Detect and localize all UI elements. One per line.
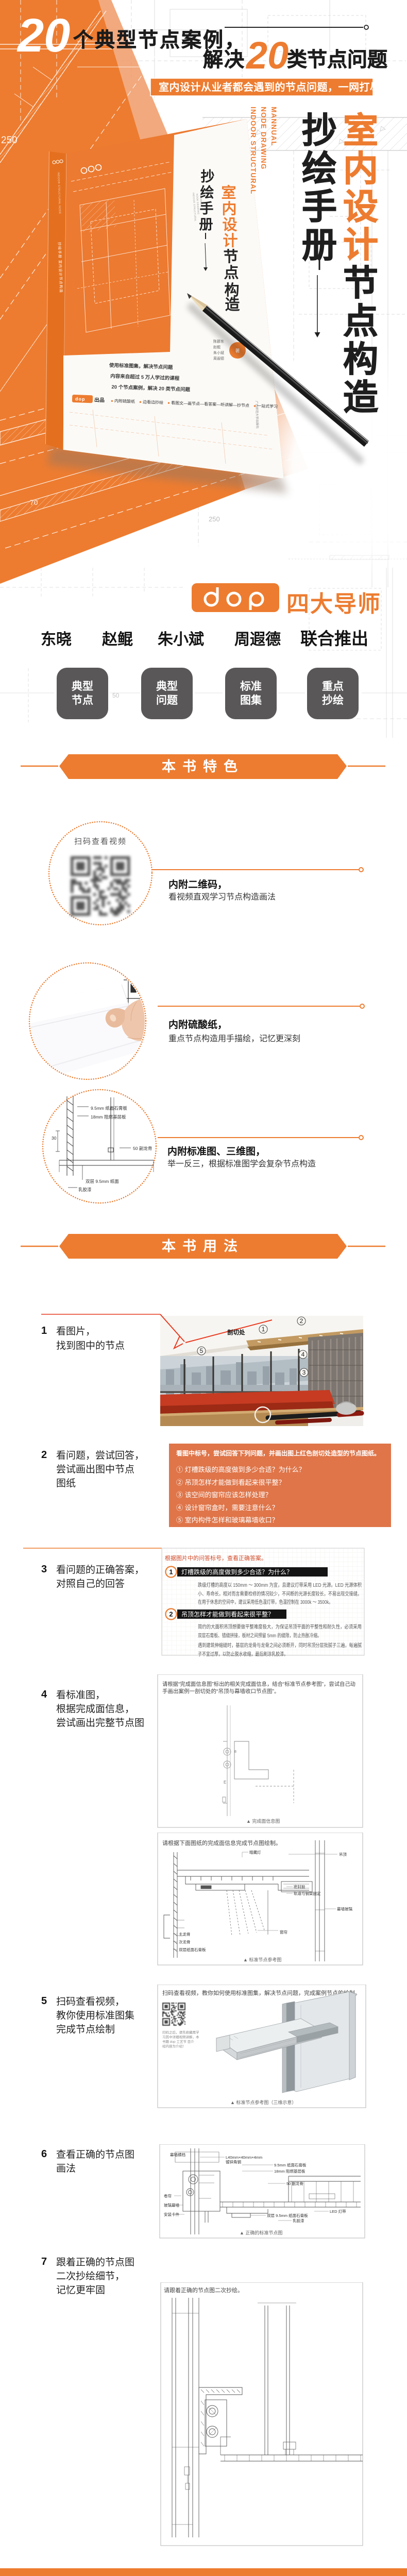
svg-text:计: 计 [223, 232, 238, 249]
svg-text:造: 造 [343, 378, 378, 417]
svg-text:5: 5 [200, 1347, 203, 1354]
svg-text:E: E [224, 1780, 226, 1785]
svg-text:根据图片中的问答标号，查看正确答案。: 根据图片中的问答标号，查看正确答案。 [165, 1554, 267, 1562]
svg-text:暗藏灯: 暗藏灯 [249, 1850, 261, 1855]
svg-text:镀锌角钢: 镀锌角钢 [226, 2159, 241, 2164]
svg-text:造: 造 [225, 296, 240, 313]
svg-text:吊顶: 吊顶 [339, 1852, 347, 1857]
svg-text:▲ 完成面信息图: ▲ 完成面信息图 [246, 1818, 280, 1824]
svg-text:安装卡件: 安装卡件 [164, 2212, 179, 2217]
svg-text:计: 计 [343, 226, 378, 265]
svg-text:次龙骨: 次龙骨 [179, 1939, 191, 1944]
svg-text:请根据下面图纸的完成面信息完成节点图绘制。: 请根据下面图纸的完成面信息完成节点图绘制。 [162, 1839, 281, 1846]
svg-text:设: 设 [222, 216, 237, 233]
svg-text:内: 内 [343, 149, 378, 189]
svg-text:20: 20 [245, 34, 289, 77]
svg-text:遇到建筑伸缩缝时，基层的龙骨与龙骨之间必须断开，同时吊顶分层: 遇到建筑伸缩缝时，基层的龙骨与龙骨之间必须断开，同时吊顶分层批腻子三遍，每遍腻 [198, 1642, 362, 1649]
svg-text:室: 室 [343, 111, 378, 150]
svg-text:剖切处: 剖切处 [227, 1329, 245, 1336]
svg-text:赵鲲: 赵鲲 [213, 345, 221, 349]
svg-text:习其中详细视频讲解，本: 习其中详细视频讲解，本 [162, 2035, 199, 2039]
svg-text:▲ 标准节点参考图（三维示意）: ▲ 标准节点参考图（三维示意） [230, 2099, 296, 2105]
svg-text:手: 手 [302, 188, 337, 227]
svg-text:轨道与钢架固定: 轨道与钢架固定 [294, 1891, 321, 1896]
svg-text:手: 手 [200, 201, 214, 216]
svg-text:简约的大面积吊顶想要做平整难度极大，为保证吊顶平面的平整性和: 简约的大面积吊顶想要做平整难度极大，为保证吊顶平面的平整性和耐久性，必须采用 [198, 1623, 362, 1630]
svg-text:4: 4 [301, 1351, 305, 1358]
svg-text:出品: 出品 [94, 396, 105, 403]
svg-text:1: 1 [169, 1568, 173, 1576]
svg-text:重点节点构造用手描绘，记忆更深刻: 重点节点构造用手描绘，记忆更深刻 [168, 1034, 300, 1043]
svg-text:3: 3 [302, 1369, 306, 1376]
svg-text:跌级灯槽的高度以 150mm ～ 300mm 为宜，且建议灯: 跌级灯槽的高度以 150mm ～ 300mm 为宜，且建议灯带采用 LED 光源… [198, 1582, 362, 1588]
svg-text:内附硫酸纸，: 内附硫酸纸， [168, 1019, 227, 1030]
svg-text:子不宜过厚，以防止脱水收缩，最后刷涂乳胶漆。: 子不宜过厚，以防止脱水收缩，最后刷涂乳胶漆。 [198, 1651, 288, 1657]
svg-text:18mm 阻燃基层板: 18mm 阻燃基层板 [274, 2168, 306, 2174]
svg-text:9.5mm 纸面石膏板: 9.5mm 纸面石膏板 [274, 2162, 307, 2167]
svg-text:朱小斌: 朱小斌 [213, 350, 224, 355]
svg-text:▲ 正确的标准节点图: ▲ 正确的标准节点图 [240, 2230, 282, 2235]
svg-text:抄: 抄 [302, 111, 337, 150]
svg-text:绘: 绘 [200, 184, 214, 200]
svg-text:50: 50 [112, 692, 120, 699]
svg-text:请跟着正确的节点图二次抄绘。: 请跟着正确的节点图二次抄绘。 [164, 2286, 243, 2294]
svg-text:室: 室 [221, 184, 236, 201]
svg-text:个典型节点案例，: 个典型节点案例， [73, 29, 246, 52]
svg-text:看视频直观学习节点构造画法: 看视频直观学习节点构造画法 [168, 892, 276, 902]
svg-text:在用于休息的空间中，建议采用低色温灯带，色温控制在 3000: 在用于休息的空间中，建议采用低色温灯带，色温控制在 3000k ～ 3500k。 [198, 1599, 333, 1605]
svg-text:双层石膏板、错缝拼接，板材之间预留 5mm 的缝隙，防止热胀: 双层石膏板、错缝拼接，板材之间预留 5mm 的缝隙，防止热胀冷缩。 [198, 1632, 321, 1639]
svg-text:50 副龙骨: 50 副龙骨 [133, 1146, 152, 1151]
svg-text:双层 9.5mm 纸面石膏板: 双层 9.5mm 纸面石膏板 [267, 2213, 308, 2218]
svg-text:INDOOR STRUCTURAL: INDOOR STRUCTURAL [249, 107, 257, 194]
svg-text:绘: 绘 [302, 149, 337, 189]
svg-text:30: 30 [52, 1136, 57, 1141]
svg-text:18mm 阻燃基层板: 18mm 阻燃基层板 [91, 1114, 126, 1120]
svg-text:书籍 dop 工艺节 目介: 书籍 dop 工艺节 目介 [162, 2039, 194, 2044]
svg-text:周遐德: 周遐德 [213, 356, 224, 361]
svg-text:70: 70 [30, 498, 38, 506]
svg-text:20: 20 [16, 9, 70, 62]
svg-text:8: 8 [234, 1750, 236, 1754]
svg-text:双层 9.5mm 纸面: 双层 9.5mm 纸面 [86, 1179, 119, 1184]
svg-text:2: 2 [300, 1317, 303, 1325]
svg-text:NODE DRAWING: NODE DRAWING [260, 107, 267, 170]
svg-text:扫码查看视频: 扫码查看视频 [74, 837, 127, 846]
svg-text:请根据“完成面信息图”标出的相关完成面信息，结合“标准节点参: 请根据“完成面信息图”标出的相关完成面信息，结合“标准节点参考图”，尝试自己动 [162, 1681, 355, 1687]
svg-text:窗帘: 窗帘 [280, 1929, 287, 1935]
svg-text:本书用法: 本书用法 [162, 1239, 244, 1254]
svg-text:类节点问题: 类节点问题 [287, 49, 387, 71]
svg-text:设: 设 [343, 188, 378, 227]
svg-text:绍内容为介绍！: 绍内容为介绍！ [162, 2044, 186, 2048]
svg-text:50 副龙骨: 50 副龙骨 [286, 2181, 303, 2186]
svg-text:室内设计从业者都会遇到的节点问题，一网打尽: 室内设计从业者都会遇到的节点问题，一网打尽 [159, 81, 381, 93]
svg-text:灯槽跌级的高度做到多少合适？为什么？: 灯槽跌级的高度做到多少合适？为什么？ [181, 1568, 293, 1576]
svg-text:手画出案例一剖切处的“吊顶与幕墙收口节点图”。: 手画出案例一剖切处的“吊顶与幕墙收口节点图”。 [162, 1688, 280, 1694]
svg-text:2: 2 [169, 1611, 173, 1618]
svg-text:主龙骨: 主龙骨 [179, 1931, 191, 1937]
svg-text:L40mm×40mm×4mm: L40mm×40mm×4mm [226, 2155, 262, 2160]
svg-text:250: 250 [1, 135, 18, 146]
svg-text:解决: 解决 [203, 49, 245, 71]
svg-text:▲ 标准节点参考图: ▲ 标准节点参考图 [243, 1957, 281, 1962]
svg-text:节: 节 [223, 248, 238, 265]
svg-text:内附二维码，: 内附二维码， [168, 878, 227, 890]
svg-text:卷帘: 卷帘 [164, 2193, 172, 2198]
svg-text:本书特色: 本书特色 [162, 758, 244, 774]
svg-text:节: 节 [343, 264, 378, 303]
svg-text:举一反三，根据标准图学会复杂节点构造: 举一反三，根据标准图学会复杂节点构造 [167, 1159, 316, 1168]
svg-text:抄: 抄 [201, 169, 215, 184]
svg-text:幕墙玻璃: 幕墙玻璃 [337, 1906, 352, 1911]
svg-text:扫码之后，请先收藏再学: 扫码之后，请先收藏再学 [162, 2030, 199, 2035]
svg-text:LED 灯带: LED 灯带 [330, 2209, 346, 2214]
svg-text:乳胶漆: 乳胶漆 [293, 2218, 304, 2223]
svg-text:250: 250 [209, 515, 220, 523]
svg-text:吊顶怎样才能做到看起来很平整？: 吊顶怎样才能做到看起来很平整？ [181, 1611, 274, 1618]
svg-text:小、寿命长，相对而言需要检修的情况较少，不间断的光源长度较长: 小、寿命长，相对而言需要检修的情况较少，不间断的光源长度较长，不易出现交接缝。 [198, 1590, 362, 1597]
svg-text:双层纸面石膏板: 双层纸面石膏板 [179, 1947, 206, 1952]
svg-text:内附标准图、三维图，: 内附标准图、三维图， [167, 1145, 265, 1157]
svg-text:乳胶漆: 乳胶漆 [78, 1187, 92, 1192]
svg-text:构: 构 [343, 340, 378, 379]
svg-text:幕墙横档: 幕墙横档 [170, 2152, 185, 2157]
svg-text:册: 册 [302, 226, 337, 265]
svg-text:册: 册 [199, 217, 213, 232]
svg-text:玻璃幕墙: 玻璃幕墙 [164, 2202, 179, 2208]
svg-text:内: 内 [222, 200, 236, 217]
svg-text:dop: dop [75, 396, 86, 402]
svg-text:点: 点 [343, 302, 378, 341]
svg-text:1: 1 [262, 1326, 265, 1333]
svg-text:点: 点 [224, 264, 239, 281]
svg-text:9.5mm 纸面石膏板: 9.5mm 纸面石膏板 [91, 1106, 127, 1111]
svg-text:密封胶: 密封胶 [294, 1884, 306, 1889]
svg-text:MANNUAL: MANNUAL [270, 107, 278, 146]
